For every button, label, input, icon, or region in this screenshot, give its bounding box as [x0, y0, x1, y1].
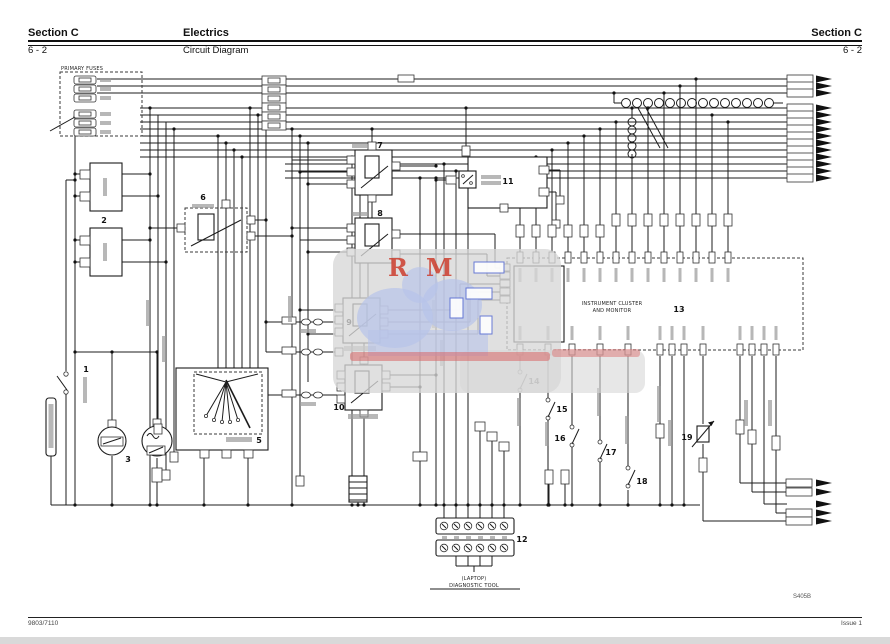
component-2: 2 [80, 163, 122, 276]
component-7-relay: 7 [347, 141, 400, 202]
component-15-number: 15 [556, 405, 568, 414]
component-3-number: 3 [125, 455, 131, 464]
component-5-number: 5 [256, 436, 262, 445]
left-resistor-block [46, 398, 56, 456]
component-5-key-switch: 5 [176, 368, 268, 458]
component-16-switch: 16 [554, 425, 579, 447]
primary-fuse-box: PRIMARY FUSES [60, 66, 142, 136]
component-2-number: 2 [101, 216, 107, 225]
component-17-switch: 17 [598, 440, 617, 462]
cluster-label-line1: INSTRUMENT CLUSTER [582, 301, 643, 307]
cluster-label-line2: AND MONITOR [593, 308, 632, 314]
watermark-letter-r: R [388, 253, 409, 282]
component-13-number: 13 [673, 305, 684, 314]
twisted-wire-coil [622, 99, 774, 159]
diagnostic-tool-label-line1: (LAPTOP) [462, 576, 487, 582]
component-19-number: 19 [681, 433, 693, 442]
component-17-number: 17 [605, 448, 616, 457]
component-12-diagnostic-connector: 12 (LAPTOP) DIAGNOSTIC TOOL [430, 518, 528, 589]
fuse-link-column [262, 76, 286, 130]
component-1-switch: 1 [57, 365, 89, 403]
component-12-number: 12 [516, 535, 527, 544]
manual-page: Section C Electrics Section C 6 - 2 Circ… [0, 0, 890, 644]
component-8-number: 8 [377, 209, 383, 218]
component-11-number: 11 [502, 177, 514, 186]
right-edge-terminals-bottom [786, 479, 832, 525]
watermark: R M [333, 249, 645, 393]
primary-fuses-label: PRIMARY FUSES [61, 66, 103, 72]
component-1-number: 1 [83, 365, 89, 374]
component-6-relay: 6 [177, 193, 255, 252]
component-11-switch: 11 [446, 146, 564, 228]
component-19-sender: 19 [681, 421, 714, 447]
watermark-letter-m: M [426, 253, 453, 282]
ground-ladder [349, 476, 367, 502]
circuit-diagram: PRIMARY FUSES 2 1 [0, 0, 890, 644]
component-6-number: 6 [200, 193, 206, 202]
component-15-switch: 15 [546, 398, 568, 420]
component-3: 3 [98, 420, 131, 464]
component-10-number: 10 [333, 403, 345, 412]
diagnostic-tool-label-line2: DIAGNOSTIC TOOL [449, 583, 499, 589]
right-edge-terminals-top [787, 75, 832, 182]
component-18-number: 18 [636, 477, 648, 486]
component-7-number: 7 [377, 141, 383, 150]
component-16-number: 16 [554, 434, 566, 443]
component-18-switch: 18 [626, 466, 648, 488]
